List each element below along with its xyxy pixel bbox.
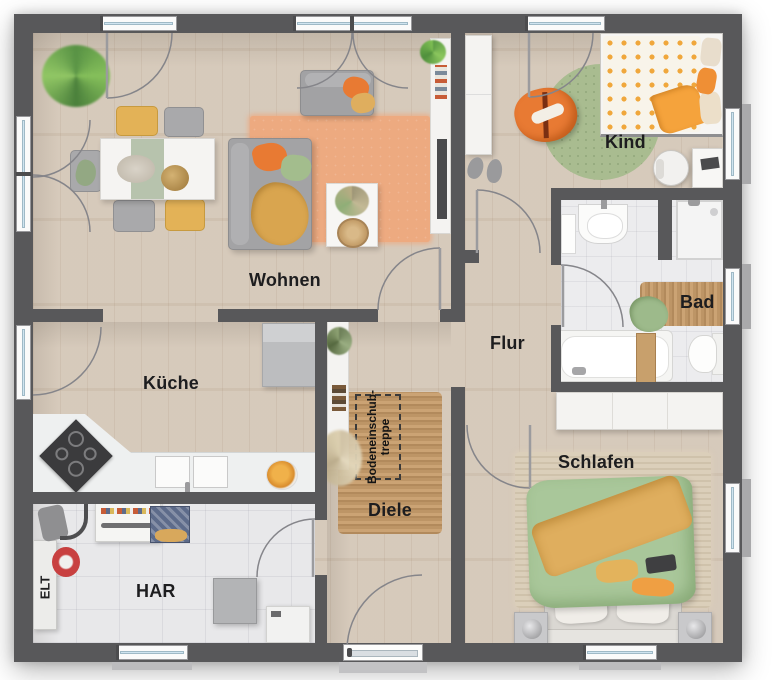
vacuum-cleaner	[40, 500, 90, 546]
wall-flur-bad-1	[551, 200, 561, 265]
laundry-basket	[150, 506, 190, 543]
room-label-bad: Bad	[680, 292, 715, 313]
french-door-mullion	[16, 172, 31, 176]
window-top-kind	[525, 16, 605, 31]
wrench	[101, 523, 153, 528]
room-label-har: HAR	[136, 581, 176, 602]
burner-4	[65, 457, 88, 480]
window-schlafen-bottom	[583, 645, 657, 660]
laundry-cloth	[155, 529, 187, 542]
toilet	[688, 331, 723, 375]
shower-partition	[658, 200, 672, 260]
wall-kueche-diele-upper	[315, 322, 327, 492]
bathtub-tray	[636, 333, 656, 383]
front-door	[343, 644, 423, 661]
kind-bed	[600, 33, 723, 137]
window-har-bottom	[116, 645, 188, 660]
wall-bad-top	[551, 188, 723, 200]
wicker-tray	[337, 218, 369, 248]
boiler-dial	[271, 611, 281, 617]
red-bucket	[52, 547, 80, 577]
desk-chair-back	[656, 159, 664, 179]
window-kind-right	[725, 108, 740, 180]
sideboard-books	[332, 385, 346, 411]
window-top-wohnen-left	[100, 16, 177, 31]
dining-chair-bottom-gray	[113, 200, 155, 232]
wall-wohnen-kueche-3	[440, 309, 451, 322]
bath-cabinet	[561, 214, 576, 254]
room-label-elt: ELT	[38, 571, 53, 605]
sideboard-plant-2	[326, 327, 352, 355]
bath-sink-bowl	[587, 213, 623, 239]
attic-stairs-line2: treppe	[379, 390, 392, 484]
front-door-panel	[350, 650, 418, 657]
bedroom-wardrobe	[556, 392, 723, 430]
wardrobe-seam-2	[667, 393, 668, 429]
kind-pillow-2	[699, 91, 723, 125]
dining-chair-top-gray	[164, 107, 204, 137]
kind-pillow-1	[700, 37, 723, 67]
room-label-wohnen: Wohnen	[249, 270, 321, 291]
fridge-top	[263, 324, 315, 342]
wardrobe-seam-1	[612, 393, 613, 429]
burner-3	[53, 445, 71, 463]
burner-1	[65, 428, 88, 451]
shutter-box-kind	[742, 104, 751, 184]
throw-mustard	[247, 179, 314, 249]
front-door-handle	[347, 648, 352, 657]
entry-step	[339, 662, 427, 673]
bath-sink-faucet	[601, 199, 607, 209]
wall-flur-bad-2	[551, 325, 561, 382]
nightstand-left	[514, 612, 548, 645]
sofa-l	[228, 138, 312, 250]
window-bad-right	[725, 268, 740, 325]
kind-desk	[692, 148, 723, 188]
wall-bad-bottom	[551, 382, 723, 392]
burner-2	[81, 445, 99, 463]
floor-plan: Wohnen Küche Kind Bad Flur Diele Schlafe…	[0, 0, 775, 680]
shutter-box-bad	[742, 264, 751, 329]
wall-har-diele-2	[315, 575, 327, 643]
fruit-bowl	[266, 460, 298, 490]
lamp-left	[522, 619, 542, 639]
shutter-box-schlafen	[742, 479, 751, 557]
table-plant	[335, 186, 369, 216]
wall-wohnen-flur	[451, 33, 465, 322]
window-mullion-top	[350, 16, 354, 31]
wall-har-diele-1	[315, 504, 327, 520]
wall-diele-schlafen	[451, 387, 465, 643]
dining-chair-bottom-yellow	[165, 199, 205, 231]
room-label-diele: Diele	[368, 500, 412, 521]
kitchen-sink	[155, 456, 229, 488]
boiler-appliance	[266, 606, 310, 643]
kind-monitor	[700, 157, 719, 170]
shower	[676, 200, 723, 260]
corner-plant	[42, 45, 110, 107]
wall-kueche-har	[33, 492, 327, 504]
bathtub-faucet	[572, 367, 586, 375]
fridge	[262, 323, 316, 387]
bathtub	[555, 330, 673, 382]
room-label-kueche: Küche	[143, 373, 199, 394]
pillow-green	[279, 153, 312, 183]
lamp-right	[686, 619, 706, 639]
toilet-bowl	[688, 335, 717, 373]
room-label-kind: Kind	[605, 132, 646, 153]
tv-screen	[437, 139, 447, 219]
window-schlafen-right	[725, 483, 740, 553]
vacuum-hose	[60, 500, 88, 540]
room-label-flur: Flur	[490, 333, 525, 354]
sill-schlafen	[579, 662, 661, 670]
sink-basin-right	[193, 456, 228, 488]
sofa-top	[300, 70, 374, 116]
wall-wohnen-kueche-1	[33, 309, 103, 322]
dining-chair-top-yellow	[116, 106, 158, 136]
wall-flur-stub	[465, 250, 479, 263]
tv-sideboard	[430, 38, 451, 234]
wall-wohnen-kueche-2	[218, 309, 378, 322]
window-kueche	[16, 325, 31, 400]
side-table	[326, 183, 378, 247]
room-label-schlafen: Schlafen	[558, 452, 635, 473]
tool-strip	[101, 508, 155, 514]
bath-sink	[578, 204, 628, 244]
nightstand-right	[678, 612, 712, 645]
storage-box	[213, 578, 257, 624]
sofa-back-cushion	[231, 143, 249, 245]
dining-table	[100, 138, 215, 200]
wardrobe-seam	[466, 94, 491, 95]
shower-drain	[710, 208, 718, 216]
flower-decor	[117, 155, 155, 183]
desk-chair	[653, 150, 689, 186]
hall-wardrobe	[465, 35, 492, 155]
book-stack	[435, 65, 447, 99]
sideboard-plant	[420, 40, 446, 64]
sill-har	[112, 662, 192, 670]
attic-stairs-label: Bodeneinschub- treppe	[366, 390, 394, 484]
bowl-decor	[161, 165, 189, 191]
